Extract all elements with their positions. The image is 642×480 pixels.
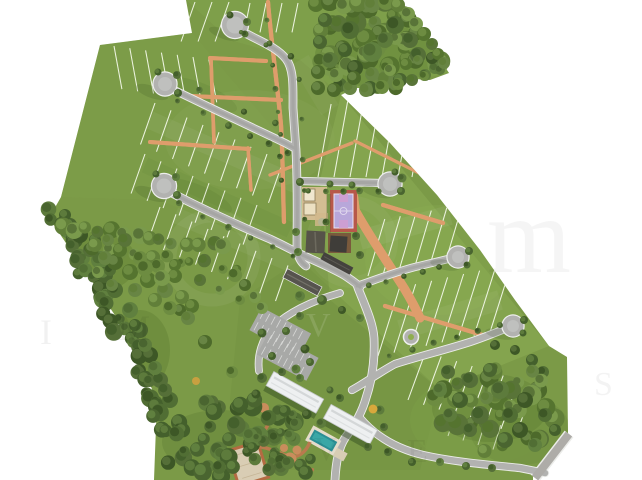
svg-text:E: E [407, 433, 428, 470]
svg-text:I: I [40, 312, 52, 352]
svg-text:m: m [487, 177, 571, 296]
svg-text:S: S [594, 366, 613, 403]
svg-text:V: V [306, 307, 331, 344]
svg-text:V: V [314, 431, 339, 468]
svg-text:M: M [118, 308, 150, 348]
